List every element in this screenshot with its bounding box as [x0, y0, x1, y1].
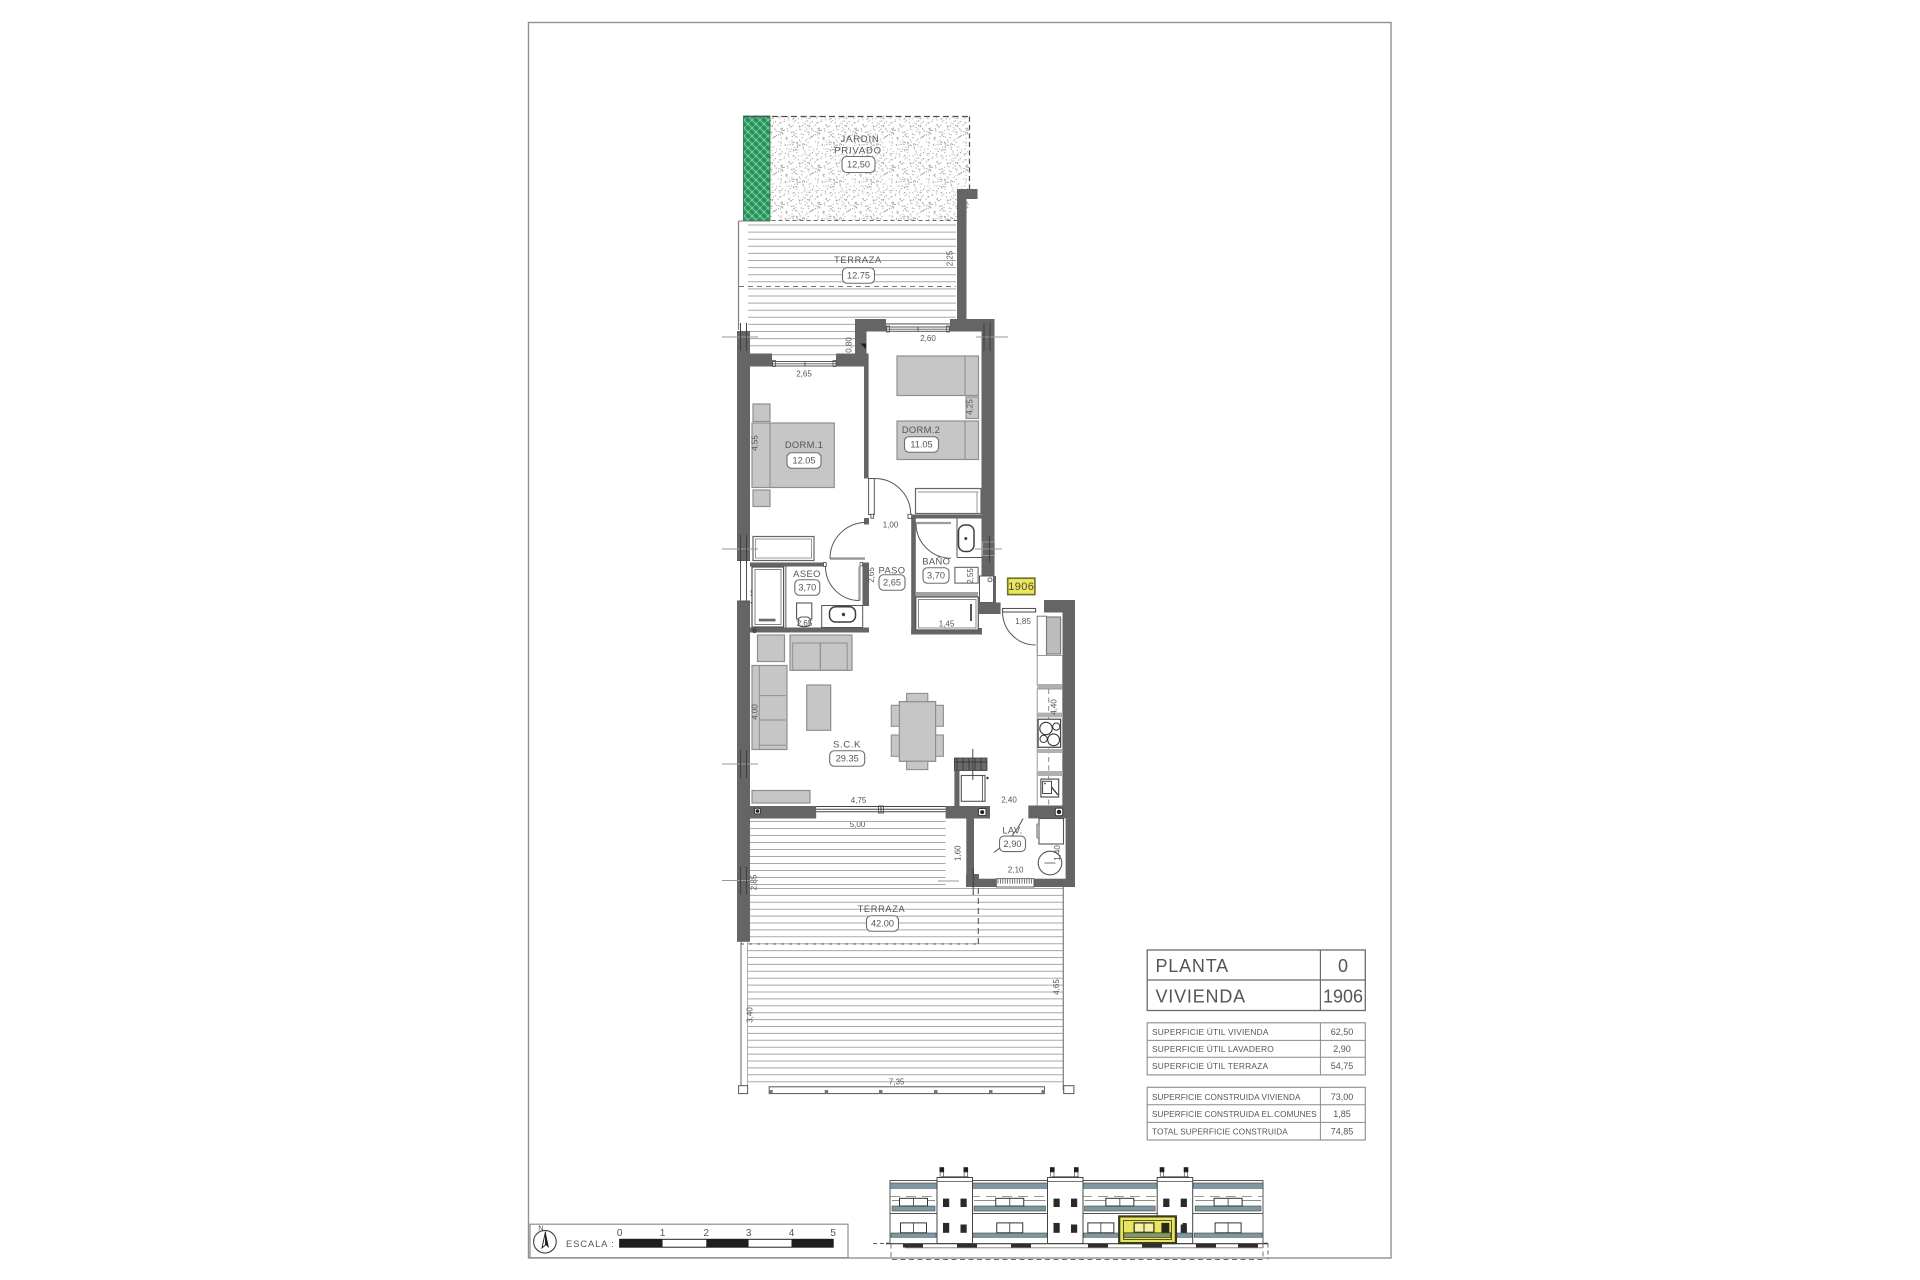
svg-text:BAÑO: BAÑO — [922, 556, 950, 567]
svg-text:73,00: 73,00 — [1331, 1092, 1354, 1102]
svg-text:2,65: 2,65 — [797, 619, 813, 628]
svg-text:62,50: 62,50 — [1331, 1027, 1354, 1037]
svg-text:4,40: 4,40 — [1050, 699, 1059, 715]
svg-text:4,65: 4,65 — [1052, 979, 1061, 995]
svg-text:ESCALA :: ESCALA : — [566, 1239, 615, 1250]
svg-text:4,55: 4,55 — [751, 435, 760, 451]
svg-text:1,60: 1,60 — [954, 845, 963, 861]
svg-text:SUPERFICIE ÚTIL VIVIENDA: SUPERFICIE ÚTIL VIVIENDA — [1152, 1027, 1269, 1037]
svg-text:SUPERFICIE ÚTIL TERRAZA: SUPERFICIE ÚTIL TERRAZA — [1152, 1061, 1268, 1071]
svg-text:74,85: 74,85 — [1331, 1127, 1354, 1137]
svg-text:DORM.2: DORM.2 — [902, 424, 940, 435]
svg-text:PASO: PASO — [879, 565, 906, 576]
svg-text:29.35: 29.35 — [836, 754, 859, 764]
svg-text:TOTAL SUPERFICIE CONSTRUIDA: TOTAL SUPERFICIE CONSTRUIDA — [1152, 1128, 1288, 1137]
svg-text:2,90: 2,90 — [1004, 839, 1022, 849]
svg-text:0: 0 — [617, 1228, 623, 1239]
svg-text:0,80: 0,80 — [845, 337, 854, 353]
svg-text:12.05: 12.05 — [793, 456, 816, 466]
svg-text:SUPERFICIE CONSTRUIDA EL.COMUN: SUPERFICIE CONSTRUIDA EL.COMUNES — [1152, 1110, 1317, 1119]
svg-text:2,25: 2,25 — [946, 250, 955, 266]
svg-text:SUPERFICIE ÚTIL LAVADERO: SUPERFICIE ÚTIL LAVADERO — [1152, 1044, 1274, 1054]
svg-text:TERRAZA: TERRAZA — [858, 904, 906, 914]
svg-text:12,50: 12,50 — [847, 160, 870, 170]
svg-text:4,00: 4,00 — [751, 704, 760, 720]
svg-text:1,00: 1,00 — [883, 521, 899, 530]
svg-text:1: 1 — [660, 1228, 666, 1239]
svg-text:S.C.K: S.C.K — [833, 740, 861, 751]
svg-text:ASEO: ASEO — [793, 568, 821, 579]
svg-text:JARDIN: JARDIN — [840, 134, 879, 145]
svg-text:2,55: 2,55 — [966, 568, 975, 584]
svg-text:1,85: 1,85 — [1015, 617, 1031, 626]
svg-text:3: 3 — [746, 1228, 752, 1239]
svg-text:SUPERFICIE CONSTRUIDA VIVIENDA: SUPERFICIE CONSTRUIDA VIVIENDA — [1152, 1093, 1301, 1102]
svg-text:2,85: 2,85 — [750, 874, 759, 890]
svg-text:1,85: 1,85 — [1333, 1109, 1351, 1119]
svg-text:1,45: 1,45 — [939, 620, 955, 629]
svg-text:PLANTA: PLANTA — [1156, 956, 1230, 976]
svg-text:54,75: 54,75 — [1331, 1061, 1354, 1071]
svg-text:2,65: 2,65 — [867, 567, 876, 583]
svg-text:2,60: 2,60 — [920, 334, 936, 343]
svg-text:11.05: 11.05 — [910, 440, 932, 450]
svg-text:12.75: 12.75 — [847, 271, 870, 281]
svg-text:VIVIENDA: VIVIENDA — [1156, 987, 1246, 1007]
svg-text:7,35: 7,35 — [889, 1078, 905, 1087]
svg-text:4: 4 — [789, 1228, 795, 1239]
svg-text:2: 2 — [704, 1228, 710, 1239]
svg-text:2,65: 2,65 — [883, 578, 901, 588]
svg-text:3,40: 3,40 — [746, 1007, 755, 1023]
svg-text:0: 0 — [1338, 956, 1348, 976]
svg-text:2,65: 2,65 — [796, 370, 812, 379]
svg-text:TERRAZA: TERRAZA — [834, 255, 882, 265]
svg-text:2,40: 2,40 — [1001, 796, 1017, 805]
svg-text:2,90: 2,90 — [1333, 1044, 1351, 1054]
svg-text:3,70: 3,70 — [927, 571, 945, 581]
svg-text:LAV.: LAV. — [1002, 825, 1022, 836]
svg-text:1906: 1906 — [1008, 581, 1034, 593]
svg-text:4,25: 4,25 — [966, 399, 975, 415]
svg-text:3,70: 3,70 — [798, 583, 816, 593]
svg-text:PRIVADO: PRIVADO — [834, 146, 882, 157]
svg-text:1,40: 1,40 — [1053, 845, 1062, 861]
svg-text:DORM.1: DORM.1 — [785, 439, 823, 450]
svg-text:2,10: 2,10 — [1008, 866, 1024, 875]
svg-text:4,75: 4,75 — [851, 796, 867, 805]
svg-text:42.00: 42.00 — [871, 919, 894, 929]
svg-text:1906: 1906 — [1323, 987, 1363, 1007]
svg-text:5: 5 — [830, 1228, 836, 1239]
